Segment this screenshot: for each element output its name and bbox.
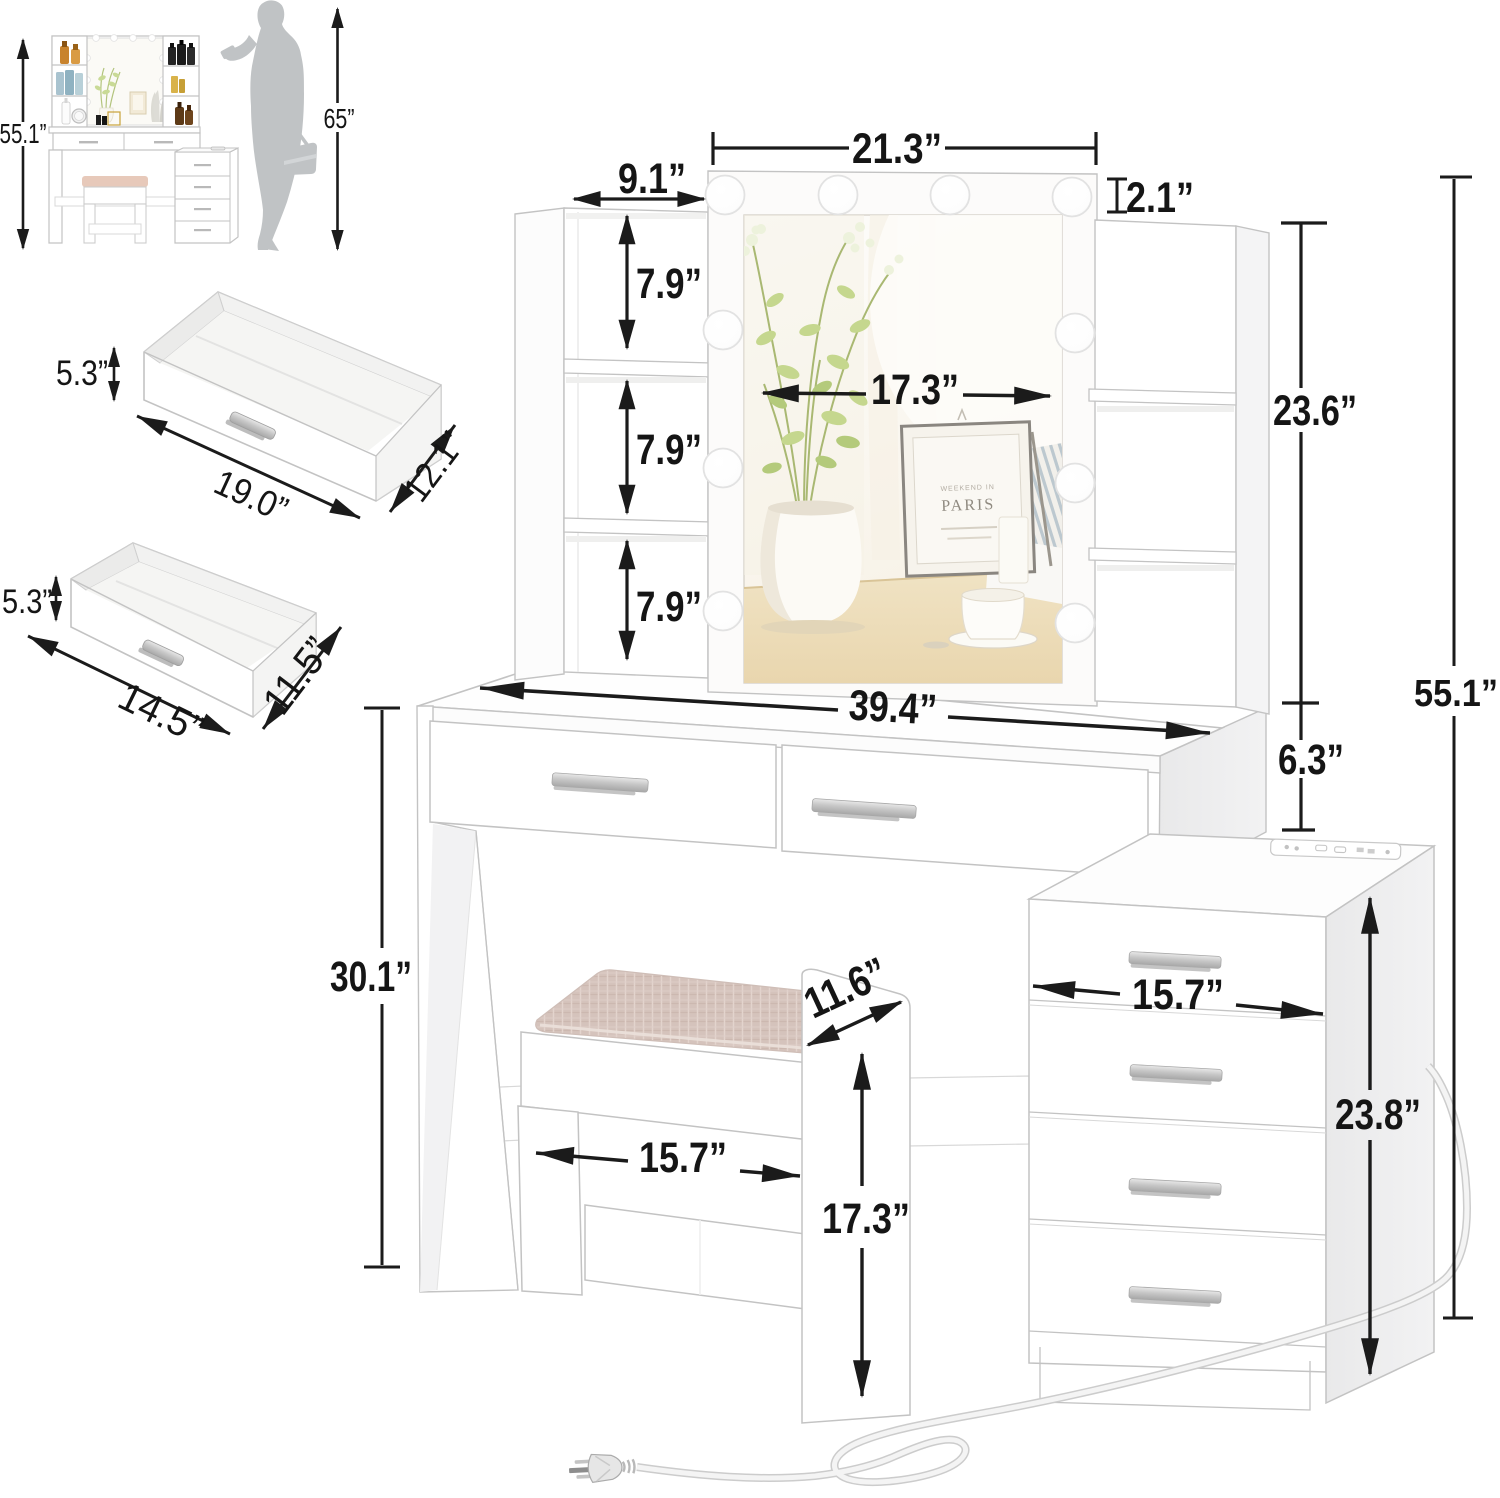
svg-text:9.1”: 9.1” [618, 155, 686, 203]
svg-text:30.1”: 30.1” [330, 953, 412, 1001]
svg-text:39.4”: 39.4” [847, 681, 938, 734]
svg-text:55.1”: 55.1” [0, 118, 47, 149]
svg-text:15.7”: 15.7” [1132, 971, 1224, 1019]
svg-text:6.3”: 6.3” [1278, 736, 1344, 784]
svg-text:5.3”: 5.3” [2, 583, 52, 621]
svg-text:7.9”: 7.9” [636, 260, 702, 308]
svg-text:23.6”: 23.6” [1273, 387, 1357, 435]
svg-text:23.8”: 23.8” [1335, 1091, 1421, 1139]
svg-text:17.3”: 17.3” [822, 1195, 910, 1243]
svg-text:65”: 65” [324, 103, 355, 134]
svg-text:21.3”: 21.3” [852, 125, 942, 173]
svg-text:17.3”: 17.3” [871, 366, 959, 414]
svg-text:55.1”: 55.1” [1414, 673, 1498, 715]
svg-text:15.7”: 15.7” [639, 1134, 727, 1182]
svg-text:2.1”: 2.1” [1126, 174, 1194, 222]
svg-text:7.9”: 7.9” [636, 583, 702, 631]
svg-text:7.9”: 7.9” [636, 426, 702, 474]
svg-text:PARIS: PARIS [941, 496, 995, 515]
svg-text:5.3”: 5.3” [56, 354, 108, 393]
